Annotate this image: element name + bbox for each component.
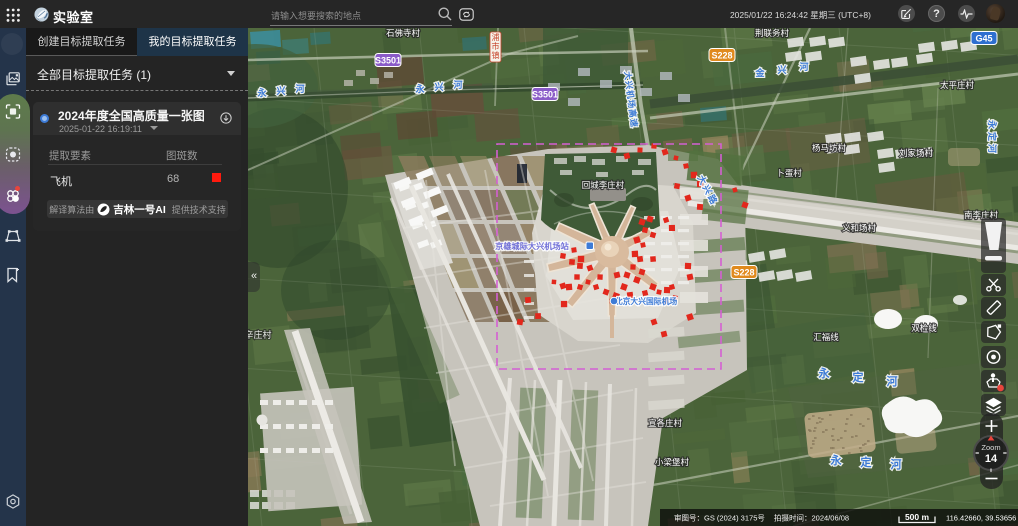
svg-text:永: 永 xyxy=(256,87,267,98)
svg-text:S3501: S3501 xyxy=(375,56,401,66)
svg-text:市: 市 xyxy=(492,41,500,51)
svg-text:辛庄村: 辛庄村 xyxy=(248,329,272,340)
svg-text:浦: 浦 xyxy=(492,32,500,42)
svg-text:卜蛋村: 卜蛋村 xyxy=(776,168,802,178)
svg-text:石佛寺村: 石佛寺村 xyxy=(386,28,421,38)
svg-text:G45: G45 xyxy=(975,34,992,44)
svg-text:永: 永 xyxy=(818,366,831,380)
svg-text:S228: S228 xyxy=(733,268,754,278)
svg-text:永: 永 xyxy=(830,453,843,467)
svg-text:永定河: 永定河 xyxy=(987,119,998,156)
svg-text:河: 河 xyxy=(453,79,462,90)
svg-text:河: 河 xyxy=(891,457,902,471)
svg-text:定: 定 xyxy=(853,370,864,384)
svg-text:京雄城际大兴机场站: 京雄城际大兴机场站 xyxy=(495,241,570,251)
svg-text:小梁堡村: 小梁堡村 xyxy=(655,457,690,467)
svg-text:荆联务村: 荆联务村 xyxy=(755,28,790,38)
svg-text:杨马坊村: 杨马坊村 xyxy=(812,143,847,153)
svg-text:定: 定 xyxy=(861,455,872,469)
svg-text:义和场村: 义和场村 xyxy=(842,223,877,233)
svg-text:S228: S228 xyxy=(711,51,732,61)
svg-text:兴: 兴 xyxy=(276,85,285,96)
svg-text:镇: 镇 xyxy=(492,50,500,60)
svg-text:宣各庄村: 宣各庄村 xyxy=(648,418,683,428)
svg-text:河: 河 xyxy=(887,374,898,388)
svg-text:汇福线: 汇福线 xyxy=(813,332,839,342)
svg-text:刘家场村: 刘家场村 xyxy=(899,148,934,158)
svg-text:永: 永 xyxy=(414,83,425,94)
svg-text:北京大兴国际机场: 北京大兴国际机场 xyxy=(615,296,678,306)
svg-text:S3501: S3501 xyxy=(532,90,558,100)
svg-text:双检线: 双检线 xyxy=(911,323,937,333)
svg-text:兴: 兴 xyxy=(777,64,786,75)
svg-text:回城李庄村: 回城李庄村 xyxy=(582,180,625,190)
svg-text:河: 河 xyxy=(799,61,808,72)
svg-text:兴: 兴 xyxy=(434,81,443,92)
svg-text:南李庄村: 南李庄村 xyxy=(964,210,999,220)
svg-text:金: 金 xyxy=(754,67,765,78)
svg-text:太平庄村: 太平庄村 xyxy=(940,80,975,90)
svg-text:河: 河 xyxy=(295,83,304,94)
